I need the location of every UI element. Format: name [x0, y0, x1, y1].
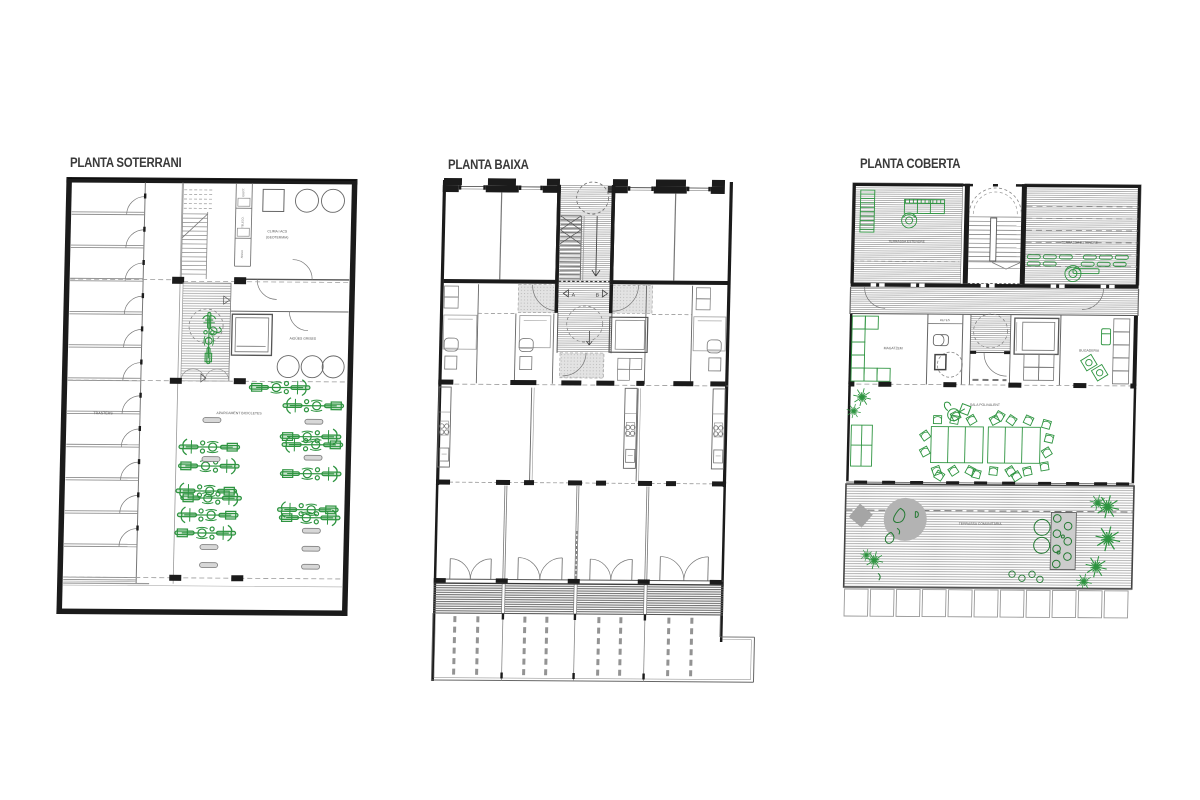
svg-text:MAGATZEM: MAGATZEM: [884, 346, 903, 350]
svg-text:AIGÜES GRISES: AIGÜES GRISES: [289, 337, 316, 341]
svg-text:PLANTA COBERTA: PLANTA COBERTA: [860, 156, 960, 171]
svg-text:SALA POLIVALENT: SALA POLIVALENT: [970, 403, 1000, 407]
svg-text:TERRASSA ESTENDRE: TERRASSA ESTENDRE: [888, 239, 925, 243]
svg-text:PLANTA SOTERRANI: PLANTA SOTERRANI: [70, 155, 181, 170]
svg-text:PLANTA BAIXA: PLANTA BAIXA: [448, 157, 529, 172]
svg-text:TERRASSA ESTENDRE: TERRASSA ESTENDRE: [1061, 240, 1098, 244]
svg-text:APARCAMENT BICICLETES: APARCAMENT BICICLETES: [216, 411, 262, 415]
svg-text:TERRASSA COMUNITÀRIA: TERRASSA COMUNITÀRIA: [959, 522, 1003, 526]
svg-text:TELECO.: TELECO.: [240, 216, 244, 227]
svg-text:AIGUA: AIGUA: [240, 250, 244, 258]
svg-text:RETES: RETES: [940, 318, 950, 322]
svg-text:CLIMA I ACS: CLIMA I ACS: [267, 229, 288, 233]
svg-text:BUGADERIA: BUGADERIA: [1079, 349, 1100, 353]
svg-text:TRASTERS: TRASTERS: [93, 411, 113, 415]
svg-text:(GEOTERMIA): (GEOTERMIA): [266, 235, 289, 239]
svg-text:ELECT.: ELECT.: [241, 188, 245, 197]
